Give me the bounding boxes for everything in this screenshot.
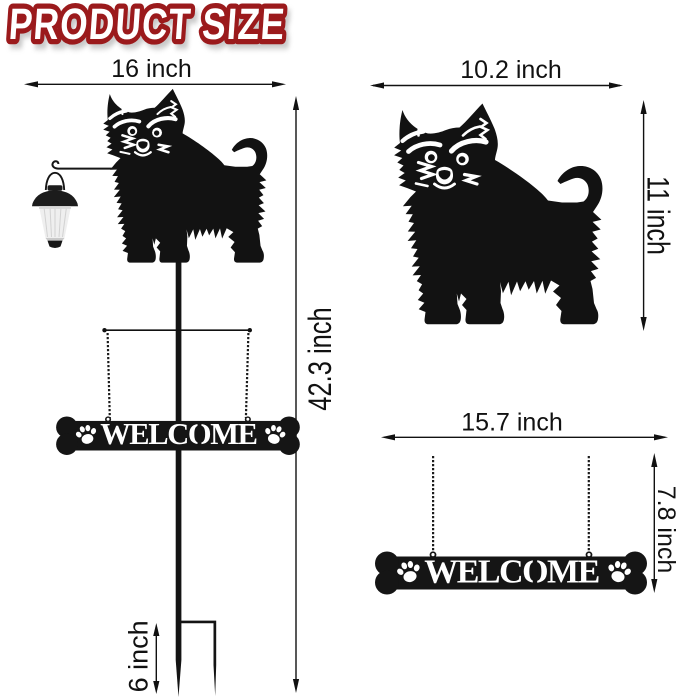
- svg-text:11 inch: 11 inch: [641, 176, 676, 255]
- svg-text:6 inch: 6 inch: [124, 620, 154, 692]
- svg-text:15.7 inch: 15.7 inch: [461, 409, 562, 437]
- svg-text:10.2 inch: 10.2 inch: [460, 56, 561, 84]
- svg-text:7.8 inch: 7.8 inch: [652, 486, 679, 574]
- svg-text:16 inch: 16 inch: [111, 55, 192, 83]
- svg-text:42.3 inch: 42.3 inch: [302, 307, 339, 410]
- svg-text:PRODUCT SIZE: PRODUCT SIZE: [7, 0, 287, 49]
